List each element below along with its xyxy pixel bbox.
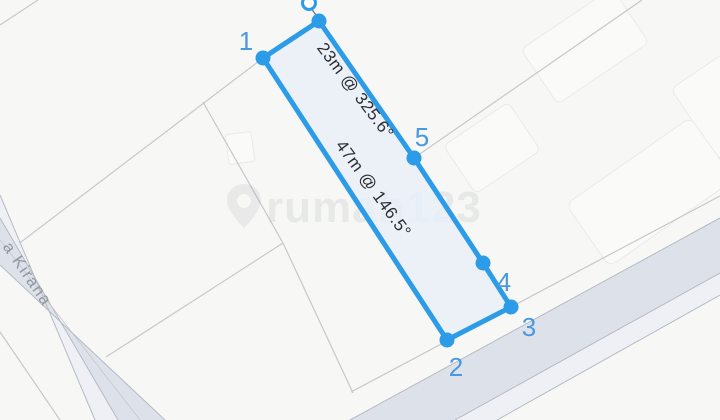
vertex-dot-6[interactable] (312, 14, 327, 29)
map-viewport[interactable]: a Kirana rumah123 23m @ 325.6° 47m @ 146… (0, 0, 720, 420)
vertex-dot-3[interactable] (504, 300, 519, 315)
vertex-label-1: 1 (239, 26, 253, 56)
vertex-dot-1[interactable] (256, 51, 271, 66)
vertex-label-5: 5 (415, 122, 429, 152)
vertex-label-3: 3 (522, 312, 536, 342)
vertex-dot-2[interactable] (440, 333, 455, 348)
vertex-dot-4[interactable] (476, 256, 491, 271)
vertex-label-2: 2 (449, 352, 463, 382)
vertex-drag-handle[interactable] (303, 0, 316, 10)
vertex-label-4: 4 (497, 267, 511, 297)
map-canvas[interactable]: a Kirana rumah123 23m @ 325.6° 47m @ 146… (0, 0, 720, 420)
vertex-dot-5[interactable] (407, 151, 422, 166)
